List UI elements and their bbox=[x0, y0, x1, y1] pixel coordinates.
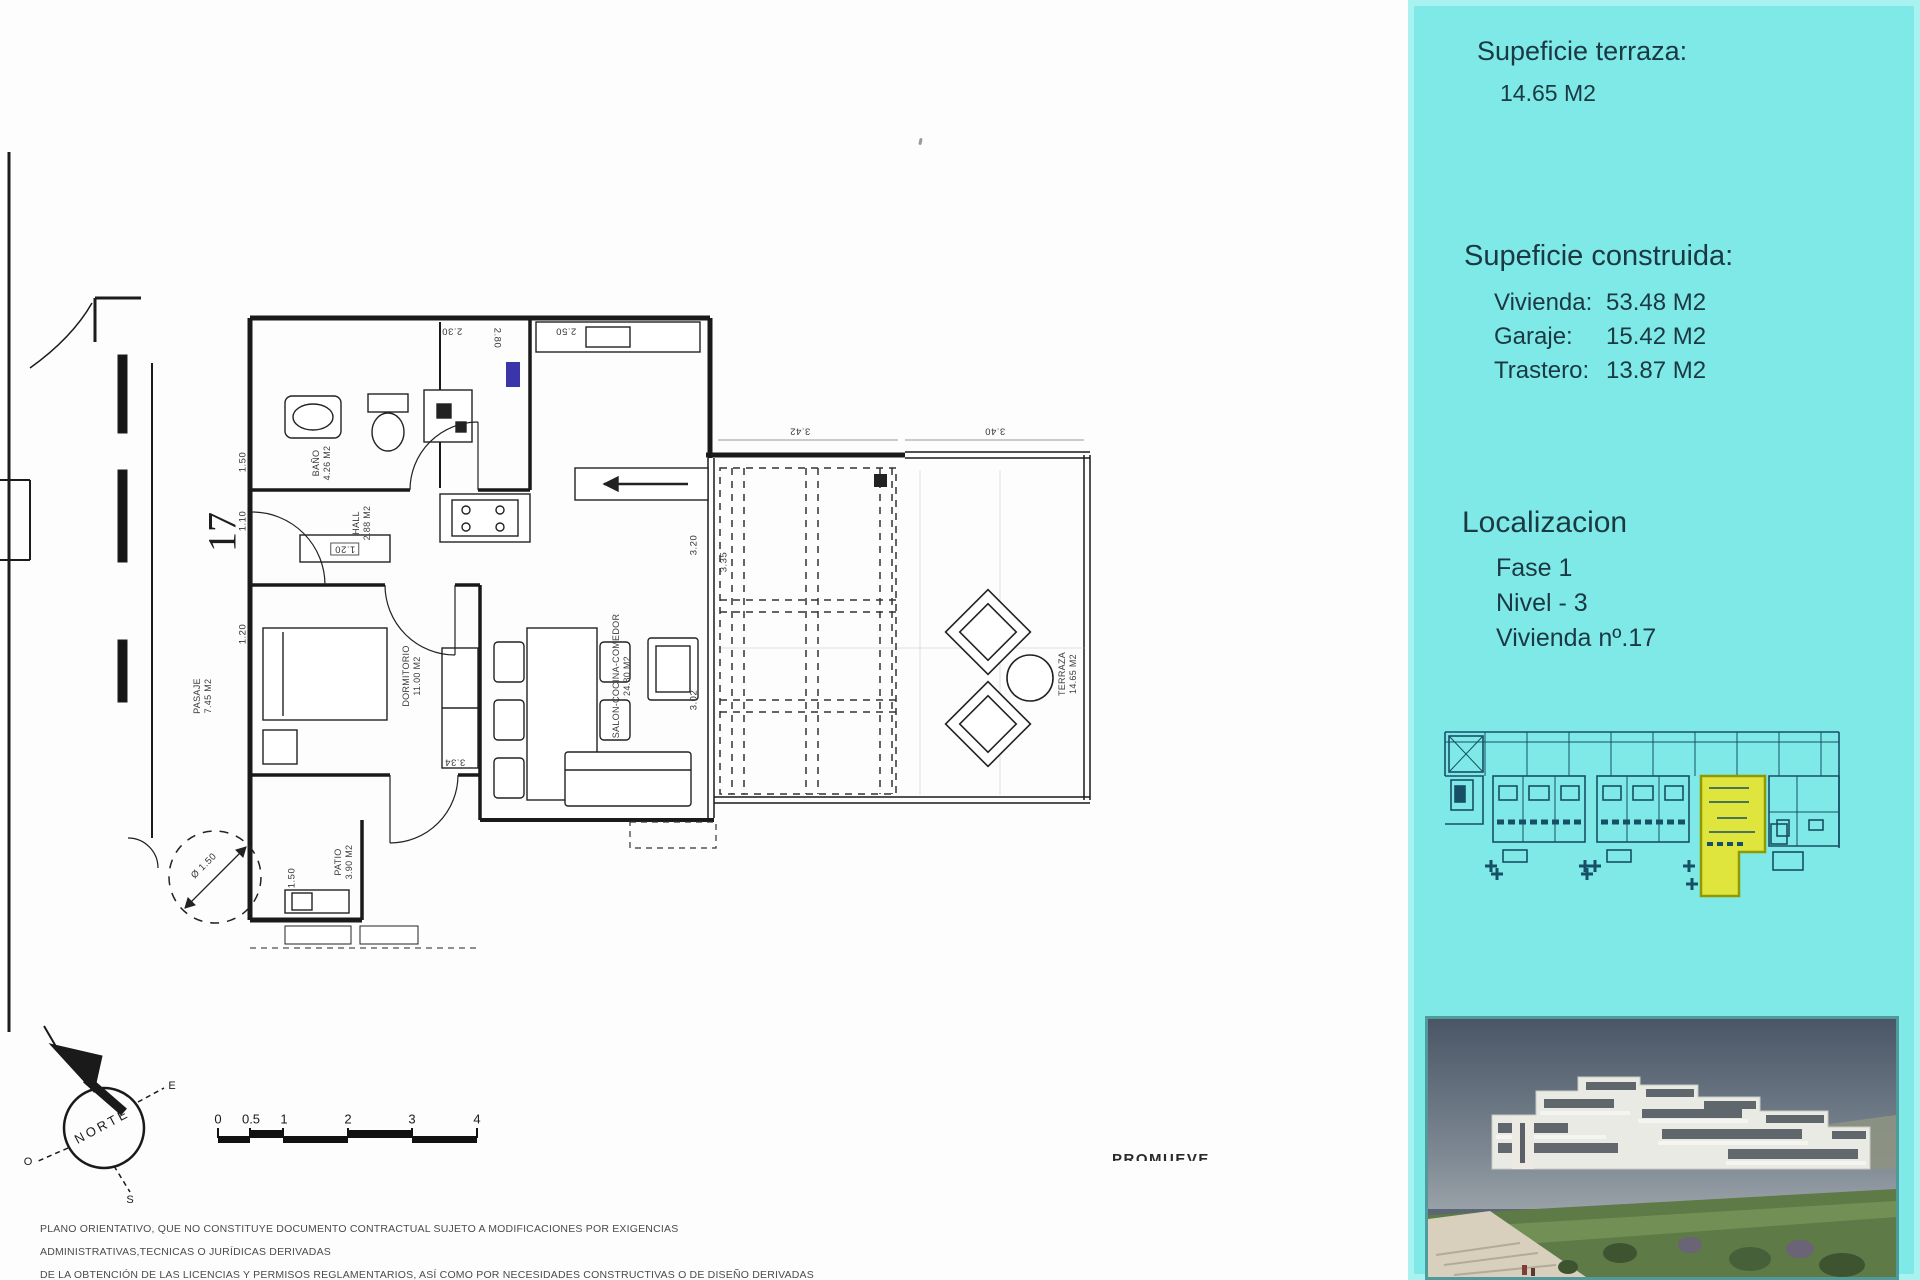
scale-tick: 4 bbox=[473, 1112, 480, 1127]
dim-label: 3.42 bbox=[790, 426, 811, 437]
room-label-hall: HALL2.88 M2 bbox=[351, 506, 373, 541]
dim-label: 3.34 bbox=[445, 757, 466, 768]
room-label-patio: PATIO3.90 M2 bbox=[333, 845, 355, 880]
scale-tick: 0.5 bbox=[242, 1112, 260, 1127]
compass-dir-o: O bbox=[24, 1156, 33, 1168]
scale-tick: 3 bbox=[408, 1112, 415, 1127]
location-line: Vivienda nº.17 bbox=[1496, 624, 1656, 659]
dim-label: 3.40 bbox=[985, 426, 1006, 437]
room-label-bano: BAÑO4.26 M2 bbox=[311, 446, 333, 481]
disclaimer-text: PLANO ORIENTATIVO, QUE NO CONSTITUYE DOC… bbox=[40, 1218, 820, 1280]
scale-tick: 2 bbox=[344, 1112, 351, 1127]
disclaimer-line: DE LA OBTENCIÓN DE LAS LICENCIAS Y PERMI… bbox=[40, 1264, 820, 1280]
highlighted-unit bbox=[1701, 776, 1765, 896]
location-line: Nivel - 3 bbox=[1496, 589, 1656, 624]
terrace-title: Supeficie terraza: bbox=[1477, 36, 1687, 67]
window-marker bbox=[506, 362, 520, 387]
dim-label: 2.30 bbox=[442, 326, 463, 337]
dim-label: 3.35 bbox=[719, 552, 730, 573]
dim-label: 1.50 bbox=[238, 452, 249, 473]
built-row: Garaje: 15.42 M2 bbox=[1494, 320, 1706, 354]
promoter-label: PROMUEVE bbox=[1112, 1151, 1210, 1161]
building-photo-render bbox=[1428, 1019, 1896, 1277]
info-sidebar: Supeficie terraza: 14.65 M2 Supeficie co… bbox=[1408, 0, 1920, 1280]
dim-label: 3.02 bbox=[689, 690, 700, 711]
dim-label: 2.50 bbox=[556, 326, 577, 337]
dim-label: 2.80 bbox=[492, 328, 503, 349]
room-label-terraza: TERRAZA14.65 M2 bbox=[1057, 652, 1079, 696]
compass-dir-s: S bbox=[126, 1194, 133, 1206]
scale-tick: 0 bbox=[214, 1112, 221, 1127]
building-photo bbox=[1425, 1016, 1899, 1280]
built-title: Supeficie construida: bbox=[1464, 240, 1733, 273]
built-rows: Vivienda: 53.48 M2 Garaje: 15.42 M2 Tras… bbox=[1494, 286, 1706, 388]
site-plan-drawing bbox=[1437, 728, 1847, 908]
compass-rose bbox=[36, 1026, 164, 1192]
site-plan bbox=[1437, 728, 1847, 908]
location-lines: Fase 1 Nivel - 3 Vivienda nº.17 bbox=[1496, 554, 1656, 659]
scale-tick: 1 bbox=[280, 1112, 287, 1127]
dim-label: 3.20 bbox=[689, 535, 700, 556]
room-label-dormitorio: DORMITORIO11.00 M2 bbox=[401, 645, 423, 706]
disclaimer-line: PLANO ORIENTATIVO, QUE NO CONSTITUYE DOC… bbox=[40, 1218, 820, 1264]
compass-dir-e: E bbox=[168, 1080, 175, 1092]
dim-label: 1.10 bbox=[238, 511, 249, 532]
room-label-pasaje: PASAJE7.45 M2 bbox=[192, 678, 214, 714]
location-line: Fase 1 bbox=[1496, 554, 1656, 589]
plan-sheet: BAÑO4.26 M2 HALL2.88 M2 DORMITORIO11.00 … bbox=[0, 0, 1920, 1280]
scale-bar bbox=[217, 1128, 478, 1143]
built-row: Trastero: 13.87 M2 bbox=[1494, 354, 1706, 388]
built-row: Vivienda: 53.48 M2 bbox=[1494, 286, 1706, 320]
dim-label: 1.20 bbox=[331, 543, 360, 556]
floor-plan-drawing bbox=[0, 0, 1408, 1280]
terrace-value: 14.65 M2 bbox=[1500, 80, 1596, 107]
room-label-salon: SALON-COCINA-COMEDOR24.80 M2 bbox=[611, 614, 633, 739]
dim-label: 1.50 bbox=[287, 868, 298, 889]
location-title: Localizacion bbox=[1462, 506, 1627, 540]
dim-label: 1.20 bbox=[238, 624, 249, 645]
